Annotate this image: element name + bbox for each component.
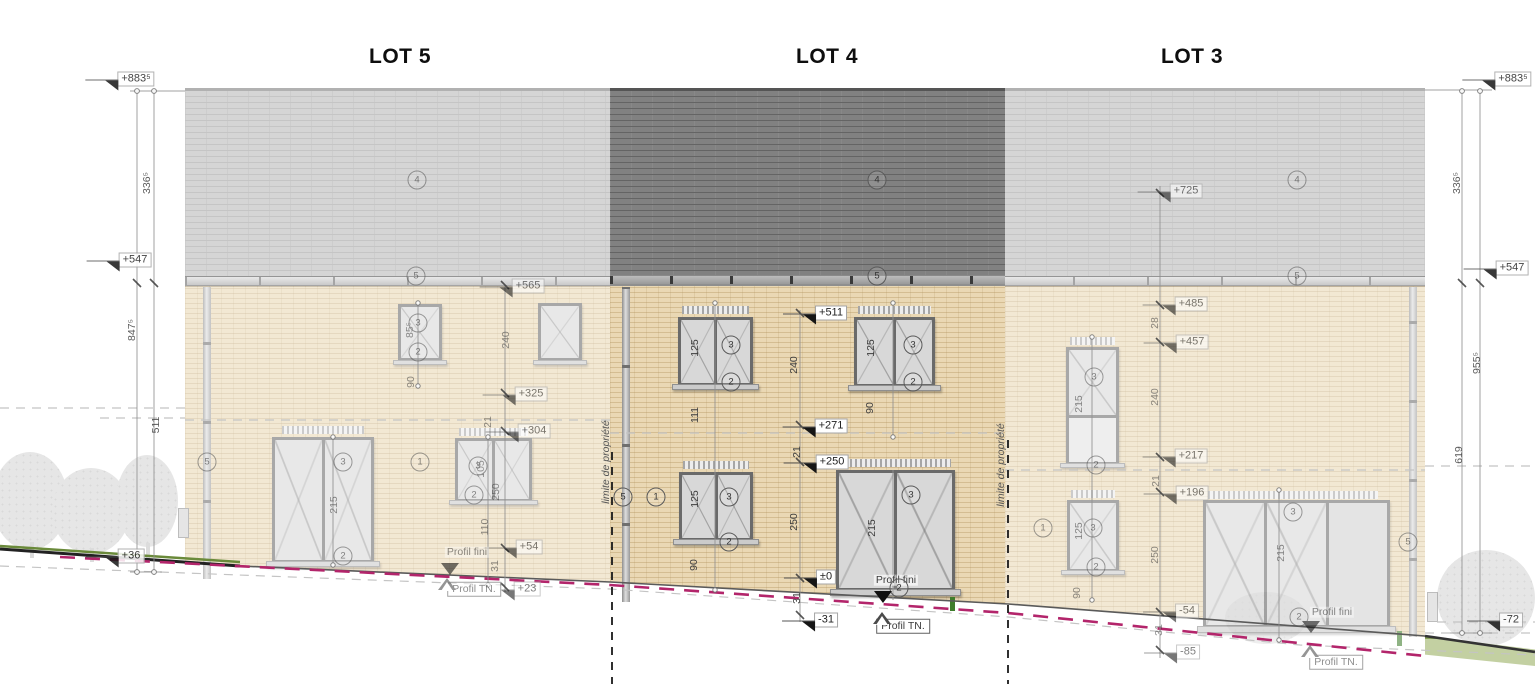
dimension-ticks (133, 189, 1484, 654)
elevation-drawing-canvas: LOT 5 LOT 4 LOT 3 +883⁵336⁵+547847⁵511+3… (0, 0, 1535, 684)
lot4-title: LOT 4 (796, 45, 858, 69)
dim-lines-left-margin (130, 90, 185, 575)
lot3-title: LOT 3 (1161, 45, 1223, 69)
window-centerlines-lot5 (333, 303, 488, 585)
terrain-dashed-gray (0, 566, 1535, 655)
level-dashed-left (0, 408, 185, 418)
window-centerlines-lot3 (1092, 337, 1279, 640)
dim-lines-right-margin (1425, 90, 1492, 633)
lot5-title: LOT 5 (369, 45, 431, 69)
ground-line-right (1425, 636, 1535, 652)
dimension-nodes (135, 89, 1483, 643)
window-centerlines-lot4 (715, 303, 893, 600)
ground-line-left (0, 549, 240, 566)
profil-tn-line (60, 557, 1425, 656)
dimension-and-terrain-lines (0, 0, 1535, 684)
